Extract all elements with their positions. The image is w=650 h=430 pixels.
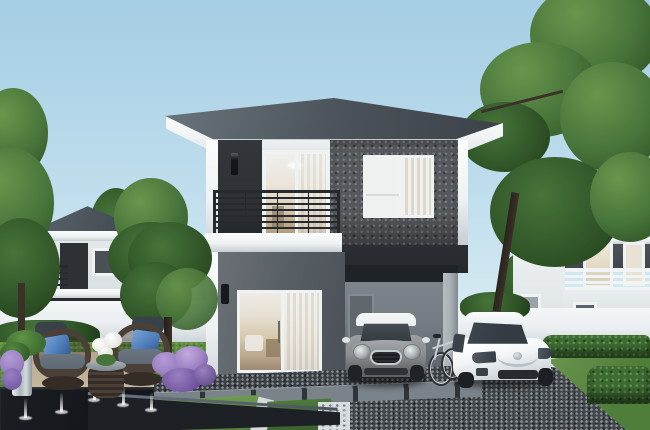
tall-left-tree xyxy=(0,88,78,348)
bike-saddle xyxy=(433,334,441,338)
window-transom xyxy=(366,194,399,196)
purple-flower-bush-left xyxy=(0,350,24,394)
scene xyxy=(0,0,650,430)
door-handle xyxy=(278,321,280,343)
living-room-sliding-door xyxy=(237,290,322,373)
wall-lamp-icon xyxy=(231,153,238,175)
purple-flower-bush-right xyxy=(150,344,216,396)
sedan-headlight-left-icon xyxy=(472,351,497,364)
window-mullion xyxy=(399,158,402,215)
mini-wheel-right xyxy=(410,365,424,381)
sedan-lower-intake xyxy=(498,370,538,379)
window-curtain xyxy=(402,158,431,215)
interior-sofa xyxy=(245,335,263,351)
hip-roof xyxy=(165,94,503,144)
vertical-blinds xyxy=(284,293,319,370)
mini-grille xyxy=(370,350,402,365)
silver-mini-hatchback xyxy=(344,313,428,388)
upper-window xyxy=(363,155,434,218)
door-mullion xyxy=(281,293,284,370)
white-sedan xyxy=(450,312,556,390)
balcony-slab xyxy=(205,233,342,252)
balcony-railing xyxy=(213,190,340,233)
mini-wheel-left xyxy=(348,365,362,381)
mini-headlight-right-icon xyxy=(403,344,421,360)
mini-windshield xyxy=(357,323,415,341)
carport-ceiling-shadow xyxy=(345,265,458,282)
sedan-logo-icon xyxy=(513,352,522,360)
trimmed-hedge-upper xyxy=(542,335,650,358)
trimmed-hedge-lower xyxy=(587,366,650,404)
mini-headlight-left-icon xyxy=(353,344,371,360)
rattan-table xyxy=(86,360,126,400)
mini-mirror-left-icon xyxy=(342,337,350,343)
mini-bumper-intake xyxy=(364,368,408,375)
sedan-headlight-right-icon xyxy=(538,348,552,359)
sedan-fog-light xyxy=(476,368,488,376)
sedan-wheel-left xyxy=(458,372,474,388)
sedan-wheel-right xyxy=(538,368,553,386)
wall-lamp-icon xyxy=(221,284,229,304)
white-flower-bouquet xyxy=(88,332,126,366)
chair-base xyxy=(42,376,84,390)
corner-column-right-upper xyxy=(458,140,468,245)
